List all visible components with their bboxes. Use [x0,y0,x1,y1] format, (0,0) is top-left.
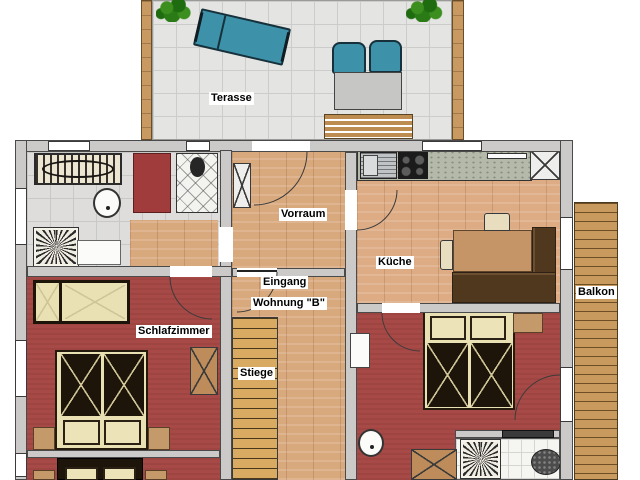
room-label-entrance-1: Eingang [261,276,308,289]
room-label-terrace: Terasse [209,92,254,105]
room-label-kitchen: Küche [376,256,414,269]
room-label-stairs: Stiege [238,367,275,380]
room-label-balcony: Balkon [576,286,617,299]
door-arc [382,313,420,351]
door-arc [515,375,560,420]
room-label-bedroom: Schlafzimmer [136,325,212,338]
room-label-entrance-2: Wohnung "B" [251,297,327,310]
door-arc [170,277,212,319]
door-arc [254,152,307,205]
room-label-vorraum: Vorraum [279,208,327,221]
door-swing-arcs [0,0,640,480]
door-arc [357,190,397,230]
floor-plan: Terasse Vorraum Küche Eingang Wohnung "B… [0,0,640,480]
